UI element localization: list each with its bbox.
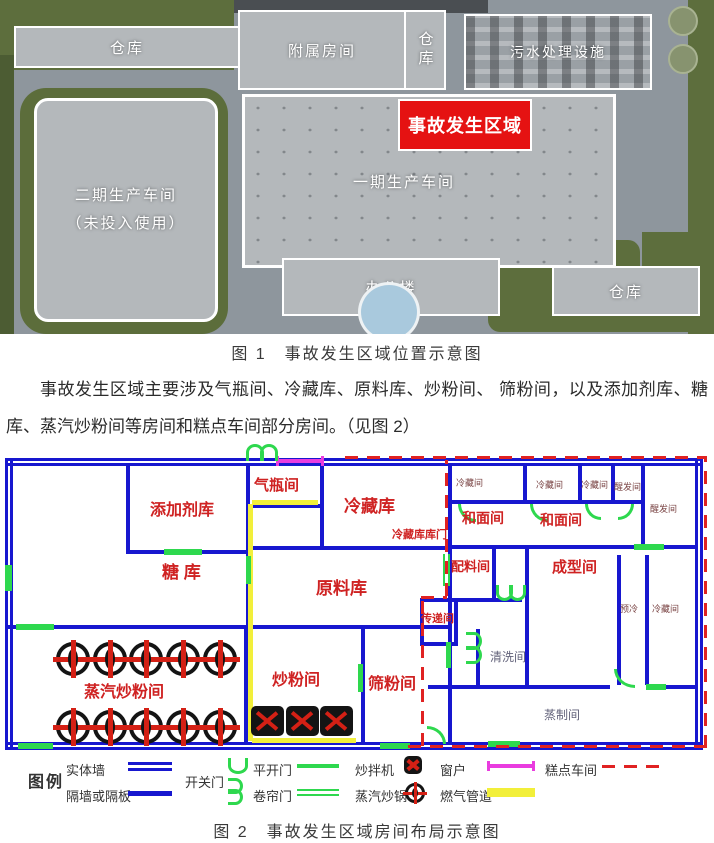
wall-segment [250,546,450,550]
room-label-cold-storage: 冷藏库 [344,492,395,517]
wall-segment [320,466,324,550]
legend-swatch-window [487,764,535,768]
figure1-caption-text: 图 1 事故发生区域位置示意图 [231,346,482,363]
door-segment [358,664,363,692]
room-label-cold-storage-door: 冷藏库库门 [392,526,447,542]
swing-door-icon [618,504,634,520]
wall-segment [523,466,527,500]
room-label-steaming: 蒸制间 [544,706,580,723]
steam-wok-icon [405,783,425,803]
tree-icon [668,6,698,36]
legend-swatch-pastry-workshop [602,765,662,768]
room-label-batching: 配料间 [451,556,490,575]
office-dome [358,282,420,334]
legend-swatch-solid-wall [128,762,172,771]
legend-swatch-roller-door [297,789,339,796]
document-page: 仓库 附属房间 仓库 污水处理设施 二期生产车间 （未投入使用） 一期生产车间 … [0,0,714,843]
room-label-transfer: 传递间 [421,610,454,626]
legend-item-solid-wall: 实体墙 [66,760,105,779]
room-label-cold-2: 冷藏间 [536,478,563,491]
building-warehouse-top-left: 仓库 [14,26,240,68]
room-label-precool: 预冷 [620,602,638,615]
pastry-boundary-dashed [421,596,447,599]
steam-wok-icon [56,642,90,676]
room-label-sugar-store: 糖 库 [162,558,201,583]
building-label: 附属房间 [288,40,356,61]
legend-item-casement-door: 平开门 [253,760,292,779]
room-label-fry: 炒粉间 [272,666,320,690]
wall-segment [645,555,649,685]
wall-segment [617,555,621,685]
figure2-caption-text: 图 2 事故发生区域房间布局示意图 [213,824,500,841]
room-label-mixing-2: 和面间 [540,510,582,530]
body-paragraph-text: 事故发生区域主要涉及气瓶间、冷藏库、原料库、炒粉间、 筛粉间，以及添加剂库、糖库… [6,380,708,436]
accident-area-label: 事故发生区域 [408,112,522,138]
wall-segment [126,466,130,550]
building-label: 二期生产车间 [75,182,177,211]
building-annex: 附属房间 [238,10,406,90]
swing-door-icon [427,726,446,744]
door-segment [646,684,666,690]
legend-item-window: 窗户 [440,760,466,779]
door-segment [246,556,251,584]
fry-mixer-icon [404,756,422,774]
door-segment [446,642,451,668]
legend-item-partition: 隔墙或隔板 [66,786,131,805]
pastry-boundary-dashed [704,456,707,748]
legend-item-fry-mixer: 炒拌机 [355,760,394,779]
grass-strip-left [0,55,14,334]
wall-segment [695,458,703,750]
fry-mixer-icon [286,706,319,736]
door-segment [380,743,410,749]
room-label-additive-store: 添加剂库 [150,496,214,520]
steam-wok-icon [129,642,163,676]
swing-door-icon [585,504,601,520]
building-label: 仓库 [609,281,643,302]
room-label-cold-1: 冷藏间 [456,476,483,489]
room-label-raw-material: 原料库 [316,574,367,599]
building-warehouse-bottom-right: 仓库 [552,266,700,316]
pastry-boundary-dashed [408,745,706,748]
room-label-cold-right: 冷藏间 [652,602,679,615]
room-label-sieve: 筛粉间 [368,670,416,694]
room-label-gas-cylinder: 气瓶间 [254,474,299,495]
wall-segment [428,685,610,689]
legend-item-pastry-workshop: 糕点车间 [545,760,597,779]
swing-door-icon [228,789,243,805]
building-label: 仓库 [415,31,436,69]
figure1-caption: 图 1 事故发生区域位置示意图 [0,340,714,364]
fry-mixer-icon [320,706,353,736]
building-phase2-workshop: 二期生产车间 （未投入使用） [34,98,218,322]
legend-swatch-gas-pipeline [487,788,535,797]
building-label: 一期生产车间 [353,171,455,192]
steam-wok-icon [203,710,237,744]
building-label: 仓库 [110,37,144,58]
room-label-cleaning: 清洗间 [490,648,526,665]
legend-swatch-casement-door [297,764,339,768]
window-line [276,459,324,463]
building-warehouse-vertical: 仓库 [404,10,446,90]
wall-segment [5,458,13,750]
wall-segment [641,466,645,550]
door-segment [18,743,53,749]
legend-swatch-partition [128,791,172,796]
door-segment [164,549,202,555]
steam-wok-icon [166,642,200,676]
swing-door-icon [614,669,635,688]
figure1-aerial-photo: 仓库 附属房间 仓库 污水处理设施 二期生产车间 （未投入使用） 一期生产车间 … [0,0,714,334]
building-label: （未投入使用） [66,210,185,239]
swing-door-icon [509,585,526,601]
legend-item-roller-door: 卷帘门 [253,786,292,805]
door-segment [634,544,664,550]
room-label-cold-3: 冷藏间 [581,478,608,491]
wall-segment [8,625,452,629]
steam-wok-icon [93,642,127,676]
door-segment [16,624,54,630]
room-label-forming: 成型间 [552,556,597,577]
tree-icon [668,44,698,74]
room-label-mixing-1: 和面间 [462,508,504,528]
body-paragraph: 事故发生区域主要涉及气瓶间、冷藏库、原料库、炒粉间、 筛粉间，以及添加剂库、糖库… [0,372,714,445]
figure2-caption: 图 2 事故发生区域房间布局示意图 [0,818,714,842]
swing-door-icon [466,646,482,664]
legend-item-steam-wok: 蒸汽炒锅 [355,786,407,805]
steam-wok-icon [129,710,163,744]
steam-wok-icon [56,710,90,744]
swing-door-icon [260,444,278,461]
fry-mixer-icon [251,706,284,736]
steam-wok-icon [166,710,200,744]
door-segment [5,565,12,591]
legend-item-gas-pipeline: 燃气管道 [440,786,492,805]
building-sewage-plant: 污水处理设施 [464,14,652,90]
swing-door-icon [228,758,248,774]
accident-area-badge: 事故发生区域 [398,99,532,151]
gas-pipeline [252,500,318,505]
room-label-proofing-1: 醒发间 [614,480,641,493]
wall-segment [664,685,698,689]
gas-pipeline [252,738,356,743]
room-label-steam-fry: 蒸汽炒粉间 [84,678,164,702]
building-label: 污水处理设施 [510,42,606,62]
figure2-floor-plan: 糖 库 添加剂库 气瓶间 冷藏库 冷藏库库门 原料库 传递间 配料间 蒸汽炒粉间… [0,452,714,816]
legend-title: 图例 [28,768,64,792]
wall-segment [5,458,703,466]
steam-wok-icon [93,710,127,744]
room-label-proofing-2: 醒发间 [650,502,677,515]
pastry-boundary-dashed [345,456,705,459]
legend-item-swing-door: 开关门 [185,772,224,791]
steam-wok-icon [203,642,237,676]
